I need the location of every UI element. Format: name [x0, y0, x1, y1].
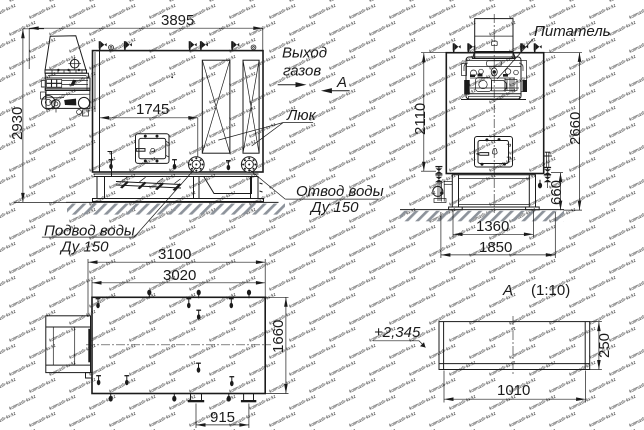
svg-text:kotmash-kv.kz: kotmash-kv.kz	[528, 257, 557, 275]
svg-text:kotmash-kv.kz: kotmash-kv.kz	[28, 308, 57, 326]
svg-text:kotmash-kv.kz: kotmash-kv.kz	[388, 70, 417, 88]
svg-text:(1:10): (1:10)	[531, 282, 570, 299]
svg-text:kotmash-kv.kz: kotmash-kv.kz	[248, 291, 277, 309]
svg-text:kotmash-kv.kz: kotmash-kv.kz	[548, 240, 577, 258]
svg-text:kotmash-kv.kz: kotmash-kv.kz	[28, 2, 57, 20]
svg-text:kotmash-kv.kz: kotmash-kv.kz	[128, 325, 157, 343]
svg-text:kotmash-kv.kz: kotmash-kv.kz	[348, 240, 377, 258]
svg-text:kotmash-kv.kz: kotmash-kv.kz	[628, 2, 644, 20]
svg-text:1010: 1010	[497, 382, 530, 399]
svg-text:kotmash-kv.kz: kotmash-kv.kz	[568, 189, 597, 207]
svg-text:kotmash-kv.kz: kotmash-kv.kz	[608, 155, 637, 173]
svg-text:kotmash-kv.kz: kotmash-kv.kz	[168, 121, 197, 139]
svg-text:kotmash-kv.kz: kotmash-kv.kz	[288, 359, 317, 377]
svg-text:kotmash-kv.kz: kotmash-kv.kz	[348, 2, 377, 20]
svg-text:kotmash-kv.kz: kotmash-kv.kz	[328, 223, 357, 241]
svg-text:kotmash-kv.kz: kotmash-kv.kz	[128, 291, 157, 309]
svg-text:1745: 1745	[136, 101, 169, 118]
svg-text:kotmash-kv.kz: kotmash-kv.kz	[348, 376, 377, 394]
svg-text:kotmash-kv.kz: kotmash-kv.kz	[308, 342, 337, 360]
svg-text:kotmash-kv.kz: kotmash-kv.kz	[108, 410, 137, 428]
svg-text:kotmash-kv.kz: kotmash-kv.kz	[628, 240, 644, 258]
svg-text:kotmash-kv.kz: kotmash-kv.kz	[328, 53, 357, 71]
svg-text:kotmash-kv.kz: kotmash-kv.kz	[288, 155, 317, 173]
svg-text:kotmash-kv.kz: kotmash-kv.kz	[368, 291, 397, 309]
svg-text:kotmash-kv.kz: kotmash-kv.kz	[308, 2, 337, 20]
svg-text:kotmash-kv.kz: kotmash-kv.kz	[548, 410, 577, 428]
svg-text:3100: 3100	[158, 246, 191, 263]
svg-text:kotmash-kv.kz: kotmash-kv.kz	[608, 257, 637, 275]
svg-text:kotmash-kv.kz: kotmash-kv.kz	[268, 172, 297, 190]
svg-text:kotmash-kv.kz: kotmash-kv.kz	[108, 308, 137, 326]
svg-text:kotmash-kv.kz: kotmash-kv.kz	[408, 155, 437, 173]
svg-text:kotmash-kv.kz: kotmash-kv.kz	[208, 223, 237, 241]
svg-text:kotmash-kv.kz: kotmash-kv.kz	[628, 70, 644, 88]
svg-text:kotmash-kv.kz: kotmash-kv.kz	[588, 308, 617, 326]
svg-text:kotmash-kv.kz: kotmash-kv.kz	[288, 257, 317, 275]
svg-text:kotmash-kv.kz: kotmash-kv.kz	[228, 172, 257, 190]
svg-text:kotmash-kv.kz: kotmash-kv.kz	[628, 342, 644, 360]
svg-text:kotmash-kv.kz: kotmash-kv.kz	[408, 393, 437, 411]
svg-text:kotmash-kv.kz: kotmash-kv.kz	[628, 308, 644, 326]
svg-text:kotmash-kv.kz: kotmash-kv.kz	[388, 172, 417, 190]
svg-text:kotmash-kv.kz: kotmash-kv.kz	[48, 257, 77, 275]
svg-text:kotmash-kv.kz: kotmash-kv.kz	[348, 104, 377, 122]
svg-text:kotmash-kv.kz: kotmash-kv.kz	[508, 240, 537, 258]
svg-text:kotmash-kv.kz: kotmash-kv.kz	[468, 2, 497, 20]
svg-text:kotmash-kv.kz: kotmash-kv.kz	[0, 2, 17, 20]
svg-text:kotmash-kv.kz: kotmash-kv.kz	[428, 104, 457, 122]
svg-text:kotmash-kv.kz: kotmash-kv.kz	[608, 19, 637, 37]
svg-text:kotmash-kv.kz: kotmash-kv.kz	[288, 325, 317, 343]
svg-text:kotmash-kv.kz: kotmash-kv.kz	[508, 104, 537, 122]
svg-text:kotmash-kv.kz: kotmash-kv.kz	[568, 155, 597, 173]
svg-text:kotmash-kv.kz: kotmash-kv.kz	[468, 104, 497, 122]
svg-text:kotmash-kv.kz: kotmash-kv.kz	[28, 342, 57, 360]
svg-text:kotmash-kv.kz: kotmash-kv.kz	[608, 87, 637, 105]
svg-text:kotmash-kv.kz: kotmash-kv.kz	[0, 138, 17, 156]
svg-text:kotmash-kv.kz: kotmash-kv.kz	[388, 240, 417, 258]
svg-text:kotmash-kv.kz: kotmash-kv.kz	[68, 2, 97, 20]
svg-text:kotmash-kv.kz: kotmash-kv.kz	[608, 223, 637, 241]
svg-text:kotmash-kv.kz: kotmash-kv.kz	[8, 223, 37, 241]
svg-text:kotmash-kv.kz: kotmash-kv.kz	[28, 410, 57, 428]
svg-text:kotmash-kv.kz: kotmash-kv.kz	[168, 53, 197, 71]
svg-text:1850: 1850	[479, 239, 512, 256]
svg-text:1360: 1360	[476, 218, 509, 235]
svg-text:kotmash-kv.kz: kotmash-kv.kz	[408, 257, 437, 275]
svg-text:250: 250	[596, 333, 613, 358]
svg-text:kotmash-kv.kz: kotmash-kv.kz	[88, 393, 117, 411]
svg-text:kotmash-kv.kz: kotmash-kv.kz	[368, 223, 397, 241]
svg-text:Ду 150: Ду 150	[59, 239, 109, 256]
svg-text:kotmash-kv.kz: kotmash-kv.kz	[188, 376, 217, 394]
svg-text:kotmash-kv.kz: kotmash-kv.kz	[608, 291, 637, 309]
svg-text:kotmash-kv.kz: kotmash-kv.kz	[0, 274, 17, 292]
svg-text:kotmash-kv.kz: kotmash-kv.kz	[288, 223, 317, 241]
svg-text:kotmash-kv.kz: kotmash-kv.kz	[348, 308, 377, 326]
svg-text:kotmash-kv.kz: kotmash-kv.kz	[568, 359, 597, 377]
svg-text:kotmash-kv.kz: kotmash-kv.kz	[448, 155, 477, 173]
svg-text:kotmash-kv.kz: kotmash-kv.kz	[528, 223, 557, 241]
svg-text:kotmash-kv.kz: kotmash-kv.kz	[188, 308, 217, 326]
svg-text:3895: 3895	[161, 12, 194, 29]
svg-text:kotmash-kv.kz: kotmash-kv.kz	[228, 2, 257, 20]
svg-text:kotmash-kv.kz: kotmash-kv.kz	[0, 410, 17, 428]
svg-text:kotmash-kv.kz: kotmash-kv.kz	[608, 189, 637, 207]
svg-text:kotmash-kv.kz: kotmash-kv.kz	[348, 410, 377, 428]
svg-text:kotmash-kv.kz: kotmash-kv.kz	[628, 104, 644, 122]
svg-text:А: А	[502, 282, 513, 299]
svg-text:kotmash-kv.kz: kotmash-kv.kz	[168, 325, 197, 343]
svg-text:kotmash-kv.kz: kotmash-kv.kz	[528, 87, 557, 105]
svg-text:kotmash-kv.kz: kotmash-kv.kz	[208, 325, 237, 343]
svg-text:2930: 2930	[9, 107, 26, 140]
svg-text:kotmash-kv.kz: kotmash-kv.kz	[68, 410, 97, 428]
svg-text:kotmash-kv.kz: kotmash-kv.kz	[168, 359, 197, 377]
svg-text:kotmash-kv.kz: kotmash-kv.kz	[388, 36, 417, 54]
svg-text:kotmash-kv.kz: kotmash-kv.kz	[588, 138, 617, 156]
svg-text:kotmash-kv.kz: kotmash-kv.kz	[128, 53, 157, 71]
svg-text:kotmash-kv.kz: kotmash-kv.kz	[548, 342, 577, 360]
svg-text:kotmash-kv.kz: kotmash-kv.kz	[148, 376, 177, 394]
svg-text:kotmash-kv.kz: kotmash-kv.kz	[8, 393, 37, 411]
svg-text:kotmash-kv.kz: kotmash-kv.kz	[588, 104, 617, 122]
svg-text:kotmash-kv.kz: kotmash-kv.kz	[568, 87, 597, 105]
svg-text:kotmash-kv.kz: kotmash-kv.kz	[548, 308, 577, 326]
svg-text:kotmash-kv.kz: kotmash-kv.kz	[628, 376, 644, 394]
svg-text:kotmash-kv.kz: kotmash-kv.kz	[108, 104, 137, 122]
svg-text:kotmash-kv.kz: kotmash-kv.kz	[268, 240, 297, 258]
svg-text:kotmash-kv.kz: kotmash-kv.kz	[28, 206, 57, 224]
svg-text:kotmash-kv.kz: kotmash-kv.kz	[408, 87, 437, 105]
svg-text:kotmash-kv.kz: kotmash-kv.kz	[528, 393, 557, 411]
svg-text:kotmash-kv.kz: kotmash-kv.kz	[568, 53, 597, 71]
svg-text:kotmash-kv.kz: kotmash-kv.kz	[528, 359, 557, 377]
svg-text:kotmash-kv.kz: kotmash-kv.kz	[428, 308, 457, 326]
svg-text:kotmash-kv.kz: kotmash-kv.kz	[48, 53, 77, 71]
svg-text:kotmash-kv.kz: kotmash-kv.kz	[128, 393, 157, 411]
svg-text:kotmash-kv.kz: kotmash-kv.kz	[348, 70, 377, 88]
svg-text:kotmash-kv.kz: kotmash-kv.kz	[628, 36, 644, 54]
svg-text:kotmash-kv.kz: kotmash-kv.kz	[568, 291, 597, 309]
svg-text:kotmash-kv.kz: kotmash-kv.kz	[568, 223, 597, 241]
svg-text:kotmash-kv.kz: kotmash-kv.kz	[0, 240, 17, 258]
svg-text:kotmash-kv.kz: kotmash-kv.kz	[128, 257, 157, 275]
svg-text:kotmash-kv.kz: kotmash-kv.kz	[68, 308, 97, 326]
svg-text:kotmash-kv.kz: kotmash-kv.kz	[128, 155, 157, 173]
svg-text:kotmash-kv.kz: kotmash-kv.kz	[208, 359, 237, 377]
svg-text:kotmash-kv.kz: kotmash-kv.kz	[0, 206, 17, 224]
svg-text:kotmash-kv.kz: kotmash-kv.kz	[608, 121, 637, 139]
svg-text:kotmash-kv.kz: kotmash-kv.kz	[308, 274, 337, 292]
svg-text:kotmash-kv.kz: kotmash-kv.kz	[568, 257, 597, 275]
svg-text:Люк: Люк	[286, 107, 317, 124]
svg-text:kotmash-kv.kz: kotmash-kv.kz	[428, 342, 457, 360]
svg-text:kotmash-kv.kz: kotmash-kv.kz	[208, 257, 237, 275]
svg-text:kotmash-kv.kz: kotmash-kv.kz	[448, 359, 477, 377]
svg-text:kotmash-kv.kz: kotmash-kv.kz	[488, 257, 517, 275]
svg-text:kotmash-kv.kz: kotmash-kv.kz	[388, 274, 417, 292]
svg-text:kotmash-kv.kz: kotmash-kv.kz	[368, 393, 397, 411]
svg-text:kotmash-kv.kz: kotmash-kv.kz	[548, 70, 577, 88]
svg-text:kotmash-kv.kz: kotmash-kv.kz	[8, 257, 37, 275]
svg-text:kotmash-kv.kz: kotmash-kv.kz	[428, 240, 457, 258]
svg-text:kotmash-kv.kz: kotmash-kv.kz	[248, 223, 277, 241]
svg-text:kotmash-kv.kz: kotmash-kv.kz	[168, 291, 197, 309]
svg-text:kotmash-kv.kz: kotmash-kv.kz	[468, 274, 497, 292]
svg-text:kotmash-kv.kz: kotmash-kv.kz	[328, 393, 357, 411]
svg-text:kotmash-kv.kz: kotmash-kv.kz	[108, 70, 137, 88]
svg-text:kotmash-kv.kz: kotmash-kv.kz	[628, 172, 644, 190]
svg-text:kotmash-kv.kz: kotmash-kv.kz	[8, 325, 37, 343]
svg-text:kotmash-kv.kz: kotmash-kv.kz	[28, 36, 57, 54]
svg-text:kotmash-kv.kz: kotmash-kv.kz	[588, 410, 617, 428]
svg-text:kotmash-kv.kz: kotmash-kv.kz	[68, 376, 97, 394]
svg-text:kotmash-kv.kz: kotmash-kv.kz	[448, 393, 477, 411]
svg-text:kotmash-kv.kz: kotmash-kv.kz	[448, 223, 477, 241]
svg-text:Отвод воды: Отвод воды	[296, 183, 384, 200]
svg-text:kotmash-kv.kz: kotmash-kv.kz	[88, 257, 117, 275]
svg-text:kotmash-kv.kz: kotmash-kv.kz	[528, 53, 557, 71]
svg-text:kotmash-kv.kz: kotmash-kv.kz	[108, 240, 137, 258]
svg-text:kotmash-kv.kz: kotmash-kv.kz	[0, 172, 17, 190]
svg-text:kotmash-kv.kz: kotmash-kv.kz	[428, 376, 457, 394]
svg-text:2660: 2660	[567, 112, 584, 145]
svg-text:kotmash-kv.kz: kotmash-kv.kz	[588, 172, 617, 190]
svg-text:kotmash-kv.kz: kotmash-kv.kz	[0, 308, 17, 326]
svg-text:kotmash-kv.kz: kotmash-kv.kz	[0, 36, 17, 54]
svg-text:kotmash-kv.kz: kotmash-kv.kz	[288, 393, 317, 411]
svg-text:kotmash-kv.kz: kotmash-kv.kz	[228, 240, 257, 258]
svg-text:915: 915	[210, 409, 235, 426]
svg-text:kotmash-kv.kz: kotmash-kv.kz	[408, 19, 437, 37]
svg-text:газов: газов	[283, 63, 321, 80]
svg-text:kotmash-kv.kz: kotmash-kv.kz	[508, 342, 537, 360]
svg-text:kotmash-kv.kz: kotmash-kv.kz	[288, 87, 317, 105]
svg-text:kotmash-kv.kz: kotmash-kv.kz	[48, 325, 77, 343]
svg-text:kotmash-kv.kz: kotmash-kv.kz	[428, 2, 457, 20]
svg-text:Питатель: Питатель	[534, 23, 611, 40]
svg-text:kotmash-kv.kz: kotmash-kv.kz	[288, 291, 317, 309]
svg-text:kotmash-kv.kz: kotmash-kv.kz	[148, 138, 177, 156]
svg-text:kotmash-kv.kz: kotmash-kv.kz	[308, 410, 337, 428]
svg-text:kotmash-kv.kz: kotmash-kv.kz	[148, 410, 177, 428]
svg-text:kotmash-kv.kz: kotmash-kv.kz	[288, 19, 317, 37]
svg-text:kotmash-kv.kz: kotmash-kv.kz	[108, 2, 137, 20]
svg-text:kotmash-kv.kz: kotmash-kv.kz	[448, 19, 477, 37]
svg-text:kotmash-kv.kz: kotmash-kv.kz	[568, 393, 597, 411]
svg-text:2110: 2110	[412, 103, 429, 135]
svg-text:kotmash-kv.kz: kotmash-kv.kz	[48, 393, 77, 411]
svg-text:kotmash-kv.kz: kotmash-kv.kz	[508, 308, 537, 326]
svg-text:kotmash-kv.kz: kotmash-kv.kz	[208, 87, 237, 105]
svg-text:kotmash-kv.kz: kotmash-kv.kz	[328, 19, 357, 37]
svg-text:kotmash-kv.kz: kotmash-kv.kz	[48, 155, 77, 173]
svg-text:kotmash-kv.kz: kotmash-kv.kz	[248, 257, 277, 275]
svg-text:kotmash-kv.kz: kotmash-kv.kz	[28, 274, 57, 292]
svg-text:kotmash-kv.kz: kotmash-kv.kz	[268, 274, 297, 292]
svg-text:kotmash-kv.kz: kotmash-kv.kz	[8, 359, 37, 377]
svg-text:kotmash-kv.kz: kotmash-kv.kz	[8, 291, 37, 309]
svg-text:kotmash-kv.kz: kotmash-kv.kz	[368, 19, 397, 37]
svg-text:1660: 1660	[270, 320, 287, 353]
svg-text:kotmash-kv.kz: kotmash-kv.kz	[128, 359, 157, 377]
svg-text:kotmash-kv.kz: kotmash-kv.kz	[528, 155, 557, 173]
svg-text:kotmash-kv.kz: kotmash-kv.kz	[608, 393, 637, 411]
svg-text:kotmash-kv.kz: kotmash-kv.kz	[388, 342, 417, 360]
svg-text:kotmash-kv.kz: kotmash-kv.kz	[48, 121, 77, 139]
svg-text:kotmash-kv.kz: kotmash-kv.kz	[328, 291, 357, 309]
svg-text:kotmash-kv.kz: kotmash-kv.kz	[288, 121, 317, 139]
svg-text:kotmash-kv.kz: kotmash-kv.kz	[268, 410, 297, 428]
svg-text:kotmash-kv.kz: kotmash-kv.kz	[0, 70, 17, 88]
svg-text:kotmash-kv.kz: kotmash-kv.kz	[508, 410, 537, 428]
svg-text:kotmash-kv.kz: kotmash-kv.kz	[308, 308, 337, 326]
svg-text:kotmash-kv.kz: kotmash-kv.kz	[468, 308, 497, 326]
svg-text:Выход: Выход	[282, 45, 327, 62]
svg-text:kotmash-kv.kz: kotmash-kv.kz	[0, 342, 17, 360]
svg-text:kotmash-kv.kz: kotmash-kv.kz	[548, 376, 577, 394]
svg-text:kotmash-kv.kz: kotmash-kv.kz	[368, 87, 397, 105]
svg-text:kotmash-kv.kz: kotmash-kv.kz	[348, 138, 377, 156]
svg-text:kotmash-kv.kz: kotmash-kv.kz	[368, 121, 397, 139]
svg-text:kotmash-kv.kz: kotmash-kv.kz	[328, 325, 357, 343]
svg-text:kotmash-kv.kz: kotmash-kv.kz	[588, 2, 617, 20]
svg-text:kotmash-kv.kz: kotmash-kv.kz	[388, 138, 417, 156]
svg-text:kotmash-kv.kz: kotmash-kv.kz	[588, 206, 617, 224]
svg-text:kotmash-kv.kz: kotmash-kv.kz	[568, 325, 597, 343]
svg-text:kotmash-kv.kz: kotmash-kv.kz	[368, 155, 397, 173]
svg-text:kotmash-kv.kz: kotmash-kv.kz	[28, 240, 57, 258]
svg-text:kotmash-kv.kz: kotmash-kv.kz	[448, 291, 477, 309]
svg-text:kotmash-kv.kz: kotmash-kv.kz	[328, 121, 357, 139]
svg-text:kotmash-kv.kz: kotmash-kv.kz	[368, 257, 397, 275]
svg-text:kotmash-kv.kz: kotmash-kv.kz	[328, 359, 357, 377]
svg-text:kotmash-kv.kz: kotmash-kv.kz	[28, 172, 57, 190]
svg-text:kotmash-kv.kz: kotmash-kv.kz	[528, 325, 557, 343]
svg-text:kotmash-kv.kz: kotmash-kv.kz	[448, 325, 477, 343]
svg-text:kotmash-kv.kz: kotmash-kv.kz	[348, 274, 377, 292]
svg-text:kotmash-kv.kz: kotmash-kv.kz	[628, 410, 644, 428]
svg-text:kotmash-kv.kz: kotmash-kv.kz	[428, 410, 457, 428]
svg-text:kotmash-kv.kz: kotmash-kv.kz	[128, 121, 157, 139]
svg-text:kotmash-kv.kz: kotmash-kv.kz	[48, 359, 77, 377]
svg-text:kotmash-kv.kz: kotmash-kv.kz	[0, 376, 17, 394]
svg-text:kotmash-kv.kz: kotmash-kv.kz	[48, 291, 77, 309]
svg-text:kotmash-kv.kz: kotmash-kv.kz	[448, 257, 477, 275]
svg-text:kotmash-kv.kz: kotmash-kv.kz	[148, 70, 177, 88]
svg-text:kotmash-kv.kz: kotmash-kv.kz	[68, 172, 97, 190]
svg-text:kotmash-kv.kz: kotmash-kv.kz	[388, 410, 417, 428]
svg-text:660: 660	[548, 180, 565, 205]
svg-text:kotmash-kv.kz: kotmash-kv.kz	[628, 274, 644, 292]
svg-text:kotmash-kv.kz: kotmash-kv.kz	[368, 53, 397, 71]
svg-text:kotmash-kv.kz: kotmash-kv.kz	[148, 308, 177, 326]
svg-text:kotmash-kv.kz: kotmash-kv.kz	[588, 70, 617, 88]
svg-text:kotmash-kv.kz: kotmash-kv.kz	[588, 240, 617, 258]
svg-text:kotmash-kv.kz: kotmash-kv.kz	[328, 257, 357, 275]
svg-text:kotmash-kv.kz: kotmash-kv.kz	[628, 206, 644, 224]
svg-text:kotmash-kv.kz: kotmash-kv.kz	[408, 53, 437, 71]
svg-text:kotmash-kv.kz: kotmash-kv.kz	[208, 155, 237, 173]
svg-text:kotmash-kv.kz: kotmash-kv.kz	[388, 376, 417, 394]
svg-text:kotmash-kv.kz: kotmash-kv.kz	[468, 376, 497, 394]
svg-text:kotmash-kv.kz: kotmash-kv.kz	[468, 410, 497, 428]
svg-text:kotmash-kv.kz: kotmash-kv.kz	[428, 274, 457, 292]
svg-text:3020: 3020	[163, 267, 196, 284]
svg-text:kotmash-kv.kz: kotmash-kv.kz	[608, 53, 637, 71]
svg-text:+2,345: +2,345	[374, 324, 421, 341]
svg-text:kotmash-kv.kz: kotmash-kv.kz	[348, 36, 377, 54]
svg-text:kotmash-kv.kz: kotmash-kv.kz	[268, 138, 297, 156]
svg-text:kotmash-kv.kz: kotmash-kv.kz	[408, 291, 437, 309]
svg-text:kotmash-kv.kz: kotmash-kv.kz	[328, 155, 357, 173]
svg-text:kotmash-kv.kz: kotmash-kv.kz	[308, 376, 337, 394]
svg-text:kotmash-kv.kz: kotmash-kv.kz	[368, 359, 397, 377]
svg-text:kotmash-kv.kz: kotmash-kv.kz	[108, 138, 137, 156]
svg-text:kotmash-kv.kz: kotmash-kv.kz	[228, 308, 257, 326]
svg-text:kotmash-kv.kz: kotmash-kv.kz	[588, 376, 617, 394]
svg-text:kotmash-kv.kz: kotmash-kv.kz	[308, 138, 337, 156]
svg-text:kotmash-kv.kz: kotmash-kv.kz	[268, 2, 297, 20]
svg-text:kotmash-kv.kz: kotmash-kv.kz	[108, 376, 137, 394]
svg-text:kotmash-kv.kz: kotmash-kv.kz	[628, 138, 644, 156]
svg-text:kotmash-kv.kz: kotmash-kv.kz	[188, 172, 217, 190]
svg-text:А: А	[336, 74, 347, 91]
svg-text:kotmash-kv.kz: kotmash-kv.kz	[28, 376, 57, 394]
svg-text:kotmash-kv.kz: kotmash-kv.kz	[388, 2, 417, 20]
svg-text:kotmash-kv.kz: kotmash-kv.kz	[408, 223, 437, 241]
svg-text:kotmash-kv.kz: kotmash-kv.kz	[428, 70, 457, 88]
svg-text:kotmash-kv.kz: kotmash-kv.kz	[528, 121, 557, 139]
svg-text:kotmash-kv.kz: kotmash-kv.kz	[468, 342, 497, 360]
svg-text:kotmash-kv.kz: kotmash-kv.kz	[448, 121, 477, 139]
svg-text:kotmash-kv.kz: kotmash-kv.kz	[168, 223, 197, 241]
svg-text:kotmash-kv.kz: kotmash-kv.kz	[208, 53, 237, 71]
svg-text:kotmash-kv.kz: kotmash-kv.kz	[188, 240, 217, 258]
svg-text:kotmash-kv.kz: kotmash-kv.kz	[248, 359, 277, 377]
svg-text:kotmash-kv.kz: kotmash-kv.kz	[588, 274, 617, 292]
svg-text:kotmash-kv.kz: kotmash-kv.kz	[28, 138, 57, 156]
svg-text:kotmash-kv.kz: kotmash-kv.kz	[308, 240, 337, 258]
svg-text:Ду 150: Ду 150	[309, 199, 359, 216]
svg-text:kotmash-kv.kz: kotmash-kv.kz	[608, 359, 637, 377]
svg-text:kotmash-kv.kz: kotmash-kv.kz	[428, 138, 457, 156]
svg-text:kotmash-kv.kz: kotmash-kv.kz	[408, 359, 437, 377]
svg-text:kotmash-kv.kz: kotmash-kv.kz	[348, 342, 377, 360]
svg-text:kotmash-kv.kz: kotmash-kv.kz	[508, 2, 537, 20]
svg-text:kotmash-kv.kz: kotmash-kv.kz	[548, 2, 577, 20]
svg-text:kotmash-kv.kz: kotmash-kv.kz	[268, 376, 297, 394]
svg-text:kotmash-kv.kz: kotmash-kv.kz	[168, 87, 197, 105]
